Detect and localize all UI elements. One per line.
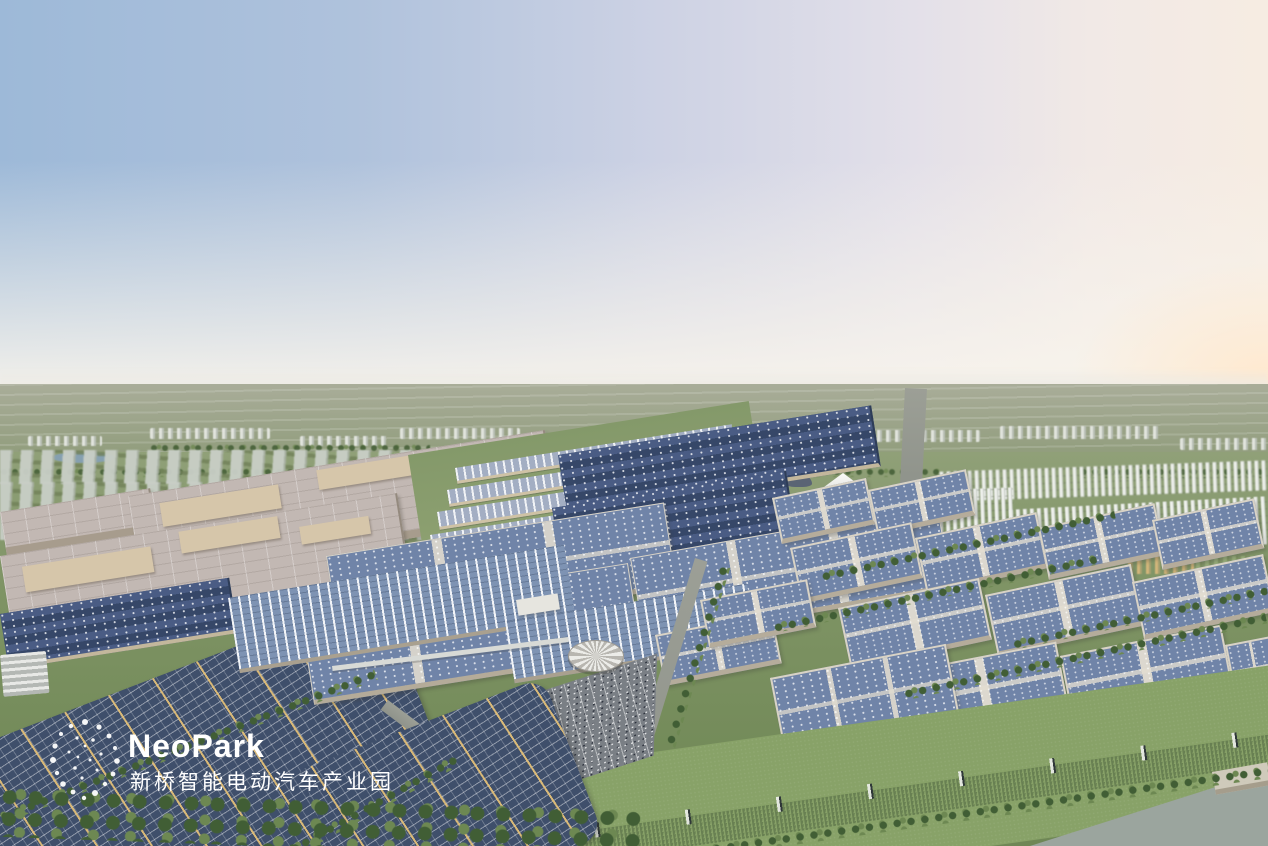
neopark-logo: NeoPark 新桥智能电动汽车产业园 — [50, 710, 470, 820]
dot-ring-logo-icon — [50, 716, 120, 804]
distant-building-cluster — [1180, 438, 1268, 450]
distant-building-cluster — [1000, 426, 1160, 439]
logo-subtitle: 新桥智能电动汽车产业园 — [130, 766, 394, 796]
round-pavilion — [568, 640, 624, 672]
logo-wordmark: NeoPark — [128, 730, 265, 762]
aerial-park-rendering: NeoPark 新桥智能电动汽车产业园 — [0, 0, 1268, 846]
distant-building-cluster — [150, 428, 270, 439]
parking-garage — [0, 651, 49, 697]
distant-building-cluster — [28, 436, 102, 446]
